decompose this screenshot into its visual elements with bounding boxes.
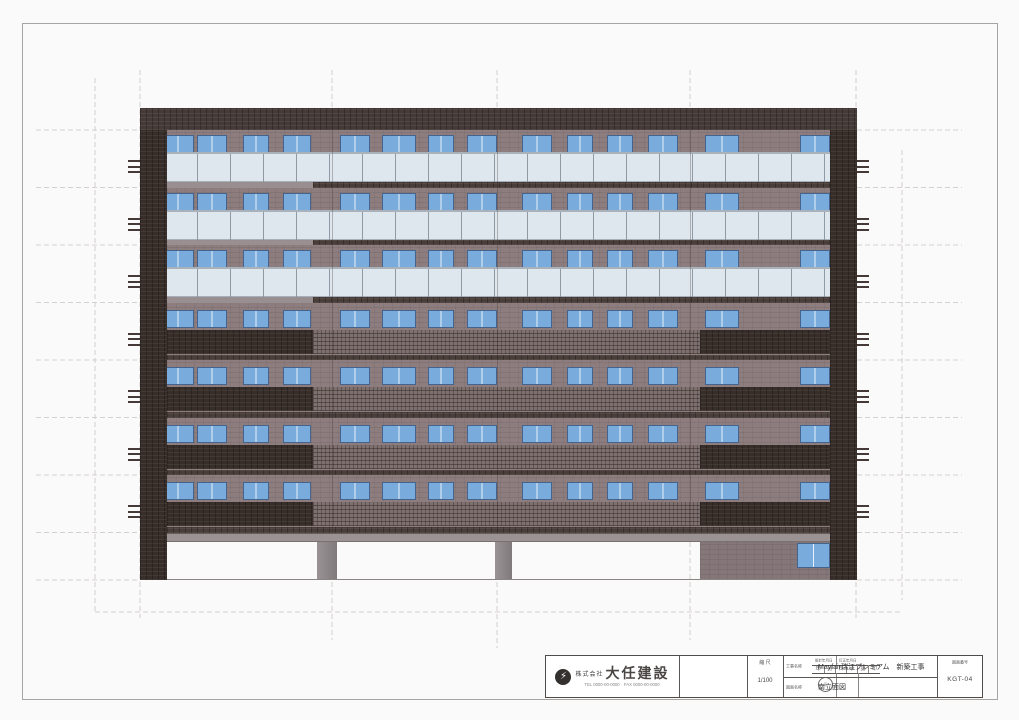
window xyxy=(800,310,830,328)
window xyxy=(382,482,416,500)
window xyxy=(283,482,311,500)
dimension-tick xyxy=(856,396,869,398)
window xyxy=(340,310,370,328)
drawing-number-label: 図面番号 xyxy=(942,660,979,666)
balcony-brick-parapet xyxy=(167,502,313,526)
window xyxy=(705,482,739,500)
ground-line xyxy=(140,579,857,580)
floor-slab-edge xyxy=(167,182,313,188)
window xyxy=(428,310,454,328)
dimension-tick xyxy=(856,516,869,518)
dimension-tick xyxy=(856,459,869,461)
dimension-tick xyxy=(856,505,869,507)
window xyxy=(607,367,633,385)
building-elevation-drawing xyxy=(140,108,857,580)
window xyxy=(428,482,454,500)
window xyxy=(197,482,227,500)
window xyxy=(283,425,311,443)
window xyxy=(797,543,830,568)
window xyxy=(522,425,552,443)
brick-spandrel xyxy=(313,297,830,303)
window xyxy=(705,425,739,443)
window xyxy=(522,310,552,328)
dimension-tick xyxy=(856,166,869,168)
drawing-name-label: 図面名称 xyxy=(786,684,812,690)
company-contact: TEL 0000-00-0000 FAX 0000-00-0000 xyxy=(583,683,663,688)
project-name-value: Mayfair瑞江プレミアム 新築工事 xyxy=(818,662,924,672)
balcony-brick-parapet xyxy=(167,445,313,469)
brick-spandrel xyxy=(313,182,830,188)
balcony-lattice-railing xyxy=(313,330,700,354)
balcony-brick-parapet xyxy=(700,387,830,411)
window xyxy=(607,425,633,443)
dimension-tick xyxy=(856,229,869,231)
window xyxy=(705,367,739,385)
drawing-name-value: 南立面図 xyxy=(818,682,846,692)
window xyxy=(567,367,593,385)
side-pilaster xyxy=(830,108,857,580)
window xyxy=(243,482,269,500)
window xyxy=(648,425,678,443)
balcony-lattice-railing xyxy=(313,445,700,469)
dimension-tick xyxy=(856,448,869,450)
scale-value: 1/100 xyxy=(747,678,783,684)
window xyxy=(522,482,552,500)
window xyxy=(467,482,497,500)
facade-grid-line xyxy=(690,130,691,533)
side-pilaster xyxy=(140,108,167,580)
brick-spandrel xyxy=(167,412,830,418)
window xyxy=(800,482,830,500)
window xyxy=(567,310,593,328)
dimension-tick xyxy=(856,390,869,392)
window xyxy=(340,425,370,443)
approval-cell: 設計年月日 訂正年月日 年 月 日 承 認 印 印 xyxy=(679,656,747,697)
dimension-tick xyxy=(856,160,869,162)
window xyxy=(467,310,497,328)
window xyxy=(243,367,269,385)
company-prefix: 株式会社 xyxy=(575,672,603,678)
pilotis-column xyxy=(495,542,512,581)
facade-grid-line xyxy=(497,130,498,533)
project-name-label: 工事名称 xyxy=(786,664,812,670)
window xyxy=(243,310,269,328)
window xyxy=(800,367,830,385)
title-block: ⚡ 株式会社大任建設 TEL 0000-00-0000 FAX 0000-00-… xyxy=(545,655,983,698)
window xyxy=(340,367,370,385)
window xyxy=(382,310,416,328)
window xyxy=(467,367,497,385)
dimension-tick xyxy=(856,286,869,288)
brick-spandrel xyxy=(167,355,830,361)
scale-label: 縮 尺 xyxy=(747,659,783,666)
window xyxy=(567,482,593,500)
window xyxy=(607,310,633,328)
roof-parapet xyxy=(140,108,857,130)
window xyxy=(428,425,454,443)
dimension-tick xyxy=(856,453,869,455)
window xyxy=(340,482,370,500)
balcony-brick-parapet xyxy=(167,330,313,354)
company-logo-icon: ⚡ xyxy=(555,669,571,685)
dimension-tick xyxy=(856,171,869,173)
window xyxy=(428,367,454,385)
floor-slab xyxy=(140,533,857,542)
drawing-number-value: KGT-04 xyxy=(937,676,983,683)
balcony-lattice-railing xyxy=(313,387,700,411)
window xyxy=(197,310,227,328)
window xyxy=(283,367,311,385)
balcony-brick-parapet xyxy=(700,330,830,354)
dimension-tick xyxy=(856,344,869,346)
window xyxy=(197,425,227,443)
window xyxy=(607,482,633,500)
dimension-tick xyxy=(856,511,869,513)
window xyxy=(648,310,678,328)
brick-spandrel xyxy=(313,240,830,246)
window xyxy=(648,482,678,500)
pilotis-column xyxy=(317,542,337,581)
company-name: 大任建設 xyxy=(606,665,670,681)
brick-spandrel xyxy=(167,470,830,476)
balcony-brick-parapet xyxy=(700,502,830,526)
floor-slab-edge xyxy=(167,297,313,303)
window xyxy=(382,425,416,443)
floor-slab-edge xyxy=(167,240,313,246)
dimension-tick xyxy=(856,333,869,335)
window xyxy=(567,425,593,443)
window xyxy=(467,425,497,443)
dimension-tick xyxy=(856,218,869,220)
company-cell: ⚡ 株式会社大任建設 TEL 0000-00-0000 FAX 0000-00-… xyxy=(546,656,679,697)
dimension-tick xyxy=(856,281,869,283)
window xyxy=(382,367,416,385)
window xyxy=(283,310,311,328)
balcony-brick-parapet xyxy=(700,445,830,469)
window xyxy=(648,367,678,385)
balcony-lattice-railing xyxy=(313,502,700,526)
window xyxy=(243,425,269,443)
dimension-tick xyxy=(856,338,869,340)
facade-grid-line xyxy=(332,130,333,533)
window xyxy=(197,367,227,385)
window xyxy=(800,425,830,443)
dimension-tick xyxy=(856,223,869,225)
window xyxy=(705,310,739,328)
dimension-tick xyxy=(856,275,869,277)
dimension-tick xyxy=(856,401,869,403)
window xyxy=(522,367,552,385)
balcony-brick-parapet xyxy=(167,387,313,411)
